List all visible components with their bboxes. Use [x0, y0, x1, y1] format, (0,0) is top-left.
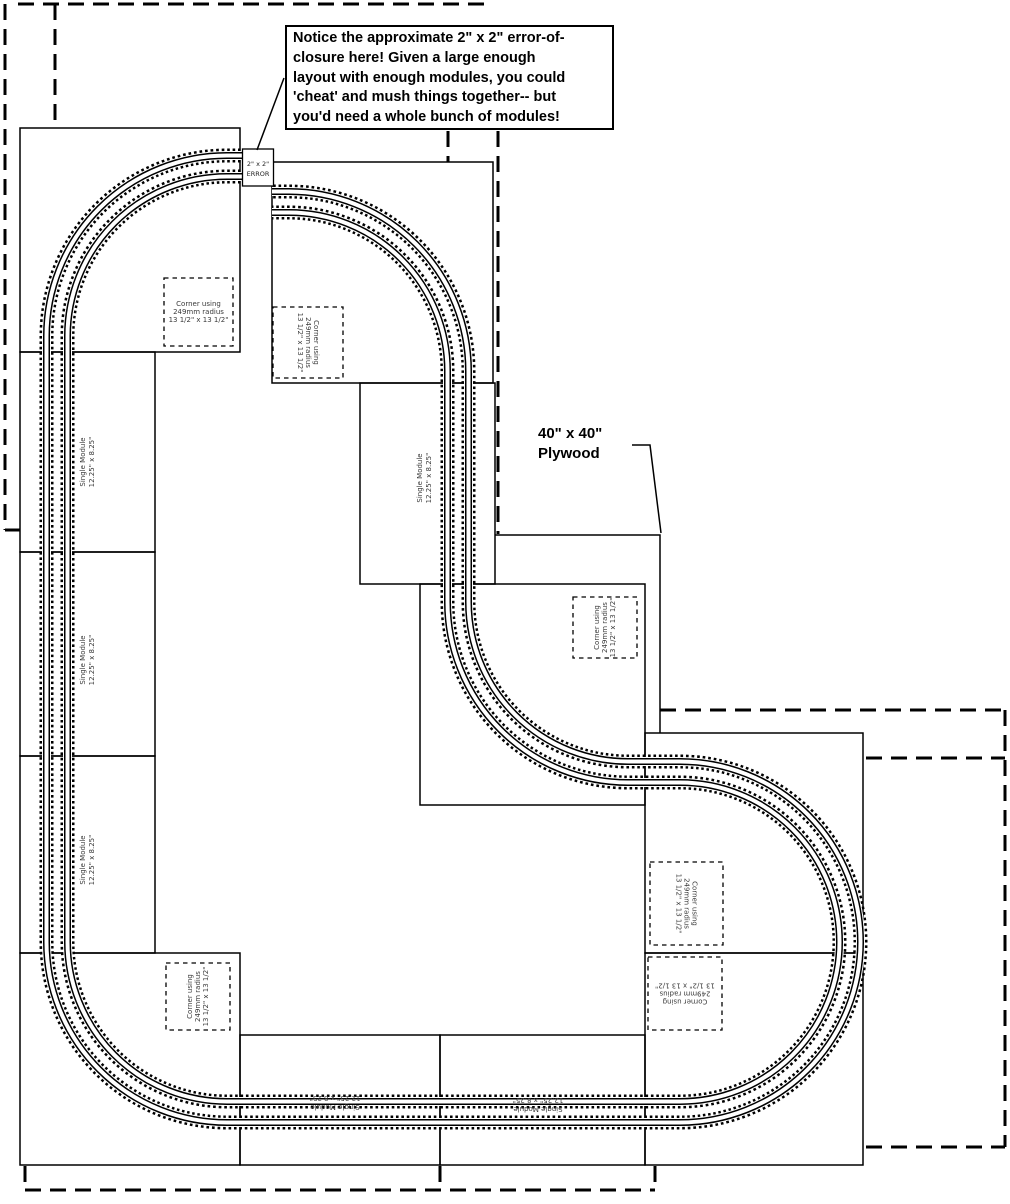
error-box-size: 2" x 2": [247, 160, 269, 168]
single-module-label-line: 12.25" x 8.25": [425, 453, 433, 504]
single-module-label-bottom-1: Single Module 12.25" x 8.25": [310, 1094, 361, 1111]
corner-label-line: 13 1/2" x 13 1/2": [296, 313, 304, 373]
corner-label-line: 13 1/2" x 13 1/2": [655, 982, 715, 990]
plywood-label-word: Plywood: [538, 444, 602, 464]
corner-label-line: Corner using: [176, 300, 221, 308]
corner-label-line: 249mm radius: [194, 971, 202, 1022]
single-module-label-line: 12.25" x 8.25": [310, 1094, 361, 1102]
single-module-label-line: 12.25" x 8.25": [513, 1096, 564, 1104]
corner-label-line: Corner using: [186, 974, 194, 1019]
single-module-label-left-1: Single Module 12.25" x 8.25": [79, 437, 96, 488]
corner-label-right-lower: Corner using 249mm radius 13 1/2" x 13 1…: [648, 957, 722, 1030]
plywood-label: 40" x 40" Plywood: [538, 424, 602, 464]
single-module-label-line: 12.25" x 8.25": [88, 635, 96, 686]
single-module-label-left-3: Single Module 12.25" x 8.25": [79, 835, 96, 886]
single-module-label-line: Single Module: [513, 1105, 562, 1113]
callout-note: Notice the approximate 2" x 2" error-of-…: [285, 25, 614, 130]
corner-label-line: 249mm radius: [304, 317, 312, 368]
track-plan-drawing: 2" x 2" ERROR Corner using 249mm radius …: [0, 0, 1010, 1204]
plywood-label-leader-line: [632, 445, 661, 533]
callout-line: you'd need a whole bunch of modules!: [293, 108, 612, 128]
corner-label-right-upper: Corner using 249mm radius 13 1/2" x 13 1…: [650, 862, 723, 945]
callout-line: layout with enough modules, you could: [293, 69, 612, 89]
corner-label-line: Corner using: [663, 998, 708, 1006]
error-box: 2" x 2" ERROR: [243, 149, 274, 186]
corner-label-bottom-left: Corner using 249mm radius 13 1/2" x 13 1…: [166, 963, 230, 1030]
corner-label-middle-right: Corner using 249mm radius 13 1/2" x 13 1…: [573, 597, 637, 658]
corner-label-line: Corner using: [691, 881, 699, 926]
corner-label-line: Corner using: [312, 320, 320, 365]
single-module-label-line: Single Module: [79, 437, 87, 486]
corner-label-top-left: Corner using 249mm radius 13 1/2" x 13 1…: [164, 278, 233, 346]
corner-label-line: 249mm radius: [601, 602, 609, 653]
corner-label-line: Corner using: [593, 605, 601, 650]
corner-label-line: 249mm radius: [683, 878, 691, 929]
single-module-label-bottom-2: Single Module 12.25" x 8.25": [513, 1096, 564, 1113]
corner-label-line: 13 1/2" x 13 1/2": [202, 967, 210, 1027]
single-module-label-left-2: Single Module 12.25" x 8.25": [79, 635, 96, 686]
plywood-label-size: 40" x 40": [538, 424, 602, 444]
corner-label-top-middle: Corner using 249mm radius 13 1/2" x 13 1…: [273, 307, 343, 378]
single-module-label-line: Single Module: [416, 453, 424, 502]
callout-line: 'cheat' and mush things together-- but: [293, 88, 612, 108]
corner-label-line: 249mm radius: [659, 990, 710, 998]
single-module-label-line: 12.25" x 8.25": [88, 437, 96, 488]
single-module-label-line: Single Module: [79, 635, 87, 684]
corner-label-line: 13 1/2" x 13 1/2": [169, 316, 229, 324]
track-plan-canvas: 2" x 2" ERROR Corner using 249mm radius …: [0, 0, 1010, 1204]
callout-line: Notice the approximate 2" x 2" error-of-: [293, 29, 612, 49]
single-module-label-middle: Single Module 12.25" x 8.25": [416, 453, 433, 504]
single-module-label-line: Single Module: [310, 1103, 359, 1111]
callout-line: closure here! Given a large enough: [293, 49, 612, 69]
corner-label-line: 249mm radius: [173, 308, 224, 316]
single-module-label-line: Single Module: [79, 835, 87, 884]
single-module-label-line: 12.25" x 8.25": [88, 835, 96, 886]
corner-label-line: 13 1/2" x 13 1/2": [609, 598, 617, 658]
callout-leader-line: [257, 78, 284, 150]
corner-label-line: 13 1/2" x 13 1/2": [675, 874, 683, 934]
error-box-word: ERROR: [247, 170, 270, 178]
